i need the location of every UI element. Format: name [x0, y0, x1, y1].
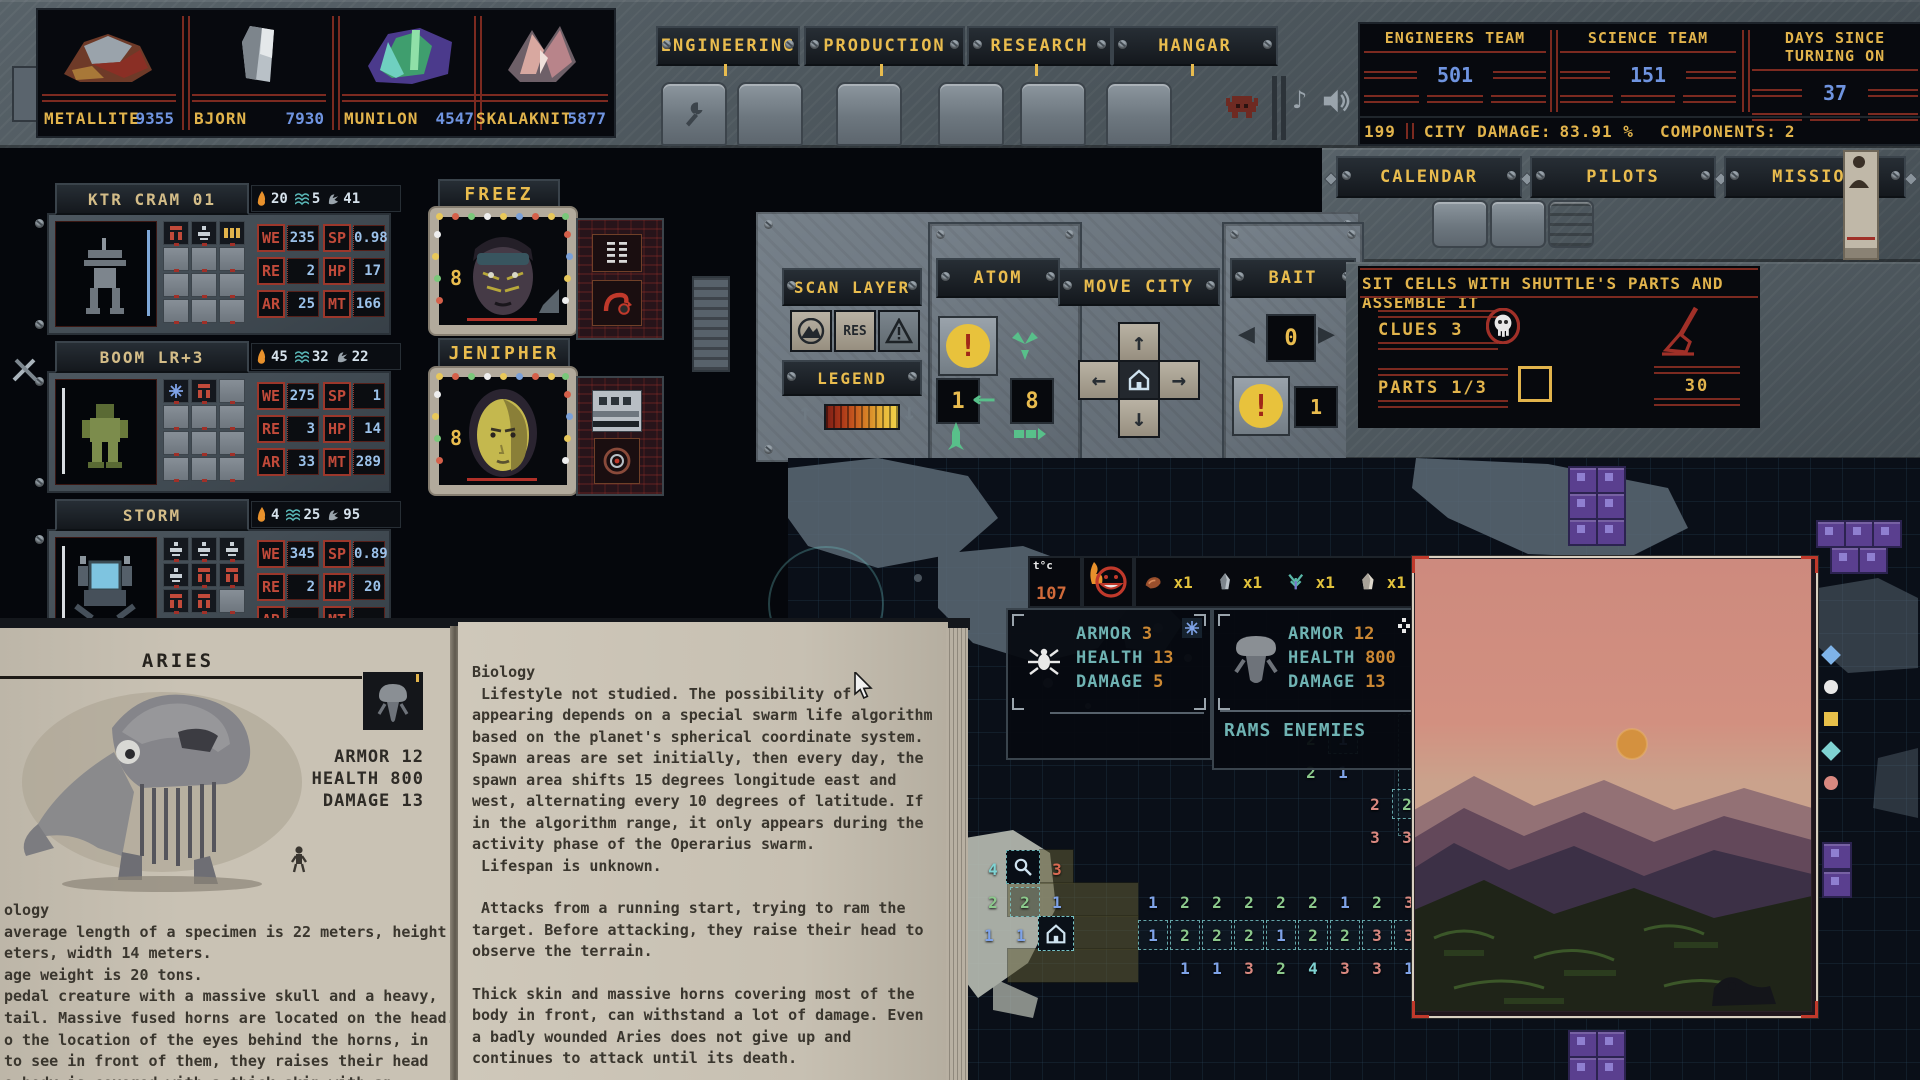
- tool-button-4[interactable]: [938, 82, 1004, 146]
- bracket: [1012, 614, 1024, 626]
- pilot-name-plate: FREEZ: [438, 179, 560, 209]
- warning-circle-icon: !: [1239, 384, 1283, 428]
- screw-icon: [1342, 171, 1351, 180]
- resource-metallite[interactable]: METALLITE 9355: [40, 18, 178, 130]
- skalaknit-crystal-icon: [484, 22, 596, 88]
- pilot-module-panel-jenipher[interactable]: [576, 376, 664, 496]
- screw-icon: [810, 40, 819, 49]
- nav-button-menu[interactable]: [1548, 200, 1594, 248]
- divider: [192, 94, 326, 102]
- screw-icon: [35, 320, 44, 329]
- bracket: [1218, 614, 1230, 626]
- module-slot-red[interactable]: [191, 589, 217, 613]
- tool-button-2[interactable]: [737, 82, 803, 146]
- screw-icon: [35, 535, 44, 544]
- module-slot-empty[interactable]: [163, 299, 189, 323]
- bait-increase-button[interactable]: ▶: [1318, 322, 1335, 347]
- module-slot-empty[interactable]: [163, 247, 189, 271]
- resource-skalaknit[interactable]: SKALAKNIT 5877: [472, 18, 610, 130]
- move-west-button[interactable]: ←: [1078, 360, 1120, 400]
- module-slot-yellow[interactable]: [219, 221, 245, 245]
- map-cell-number[interactable]: 3: [1334, 956, 1356, 980]
- bestiary-paragraph: Attacks from a running start, trying to …: [472, 898, 934, 963]
- book-left-page: ARIES: [0, 628, 452, 1080]
- divider: [1654, 366, 1740, 374]
- mech-name-plate: STORM: [55, 499, 249, 531]
- mech-slot-grid[interactable]: [163, 379, 251, 485]
- mech-name: BOOM LR+3: [100, 348, 205, 367]
- map-cell-number[interactable]: 2: [1170, 920, 1200, 950]
- tab-calendar[interactable]: CALENDAR: [1336, 156, 1522, 198]
- divider: [1378, 368, 1508, 376]
- armor-label: ARMOR: [1076, 624, 1132, 644]
- enemy-card-small: ARMOR 3 HEALTH 13 DAMAGE 5: [1006, 608, 1212, 760]
- screw-icon: [787, 281, 796, 290]
- move-east-button[interactable]: →: [1158, 360, 1200, 400]
- module-slot-white[interactable]: [219, 537, 245, 561]
- container-icon: [1596, 1030, 1626, 1058]
- module-slot-red[interactable]: [163, 221, 189, 245]
- screw-icon: [1065, 230, 1074, 239]
- game-screen: METALLITE 9355 BJORN 7930: [0, 0, 1920, 1080]
- portrait-underline: [467, 318, 537, 321]
- temperature-box: t°c 107: [1028, 556, 1082, 608]
- bait-title: BAIT: [1269, 268, 1318, 288]
- screw-icon: [950, 40, 959, 49]
- map-cell-number[interactable]: 2: [1330, 920, 1360, 950]
- bestiary-title: ARIES: [28, 650, 328, 672]
- nav-button-2[interactable]: [1490, 200, 1546, 248]
- container-icon: [1816, 520, 1846, 548]
- map-cell-number[interactable]: 1: [978, 923, 1000, 947]
- map-cell-number[interactable]: 2: [1298, 920, 1328, 950]
- enemy-trait: RAMS ENEMIES: [1224, 720, 1366, 741]
- module-slot-empty[interactable]: [219, 273, 245, 297]
- map-cell-number[interactable]: 1: [1010, 923, 1032, 947]
- stat-value-mt: 166: [353, 291, 385, 317]
- stat-label-sp: SP: [323, 382, 351, 410]
- legend-up-arrow-icon: ↑: [798, 398, 812, 426]
- triangle-right-icon: ▶: [1318, 322, 1335, 347]
- screw-icon: [785, 40, 794, 49]
- transfer-arrow-icon: ←: [972, 384, 995, 414]
- resource-bjorn[interactable]: BJORN 7930: [190, 18, 328, 130]
- volume-slider[interactable]: [1272, 76, 1277, 140]
- pilot-name: JENIPHER: [449, 343, 560, 364]
- divider: [1220, 710, 1414, 712]
- screw-icon: [1263, 40, 1272, 49]
- bait-deploy-button[interactable]: !: [1232, 376, 1290, 436]
- module-slot-red[interactable]: [219, 563, 245, 587]
- screw-icon: [1097, 40, 1106, 49]
- tool-button-5[interactable]: [1020, 82, 1086, 146]
- module-slot-white[interactable]: [163, 563, 189, 587]
- mouse-cursor: [853, 672, 877, 700]
- legend-plate: LEGEND: [782, 360, 922, 396]
- module-slot-empty[interactable]: [163, 273, 189, 297]
- map-cell-number[interactable]: 3: [1238, 956, 1260, 980]
- tab-label: RESEARCH: [991, 36, 1089, 56]
- module-slot-empty[interactable]: [219, 247, 245, 271]
- stat-value-sp: 1: [353, 383, 385, 409]
- stat-value-we: 275: [287, 383, 319, 409]
- tick: [416, 674, 419, 682]
- module-ladder-icon: [592, 234, 642, 272]
- tab-label: HANGAR: [1158, 36, 1231, 56]
- stat-value-we: 235: [287, 225, 319, 251]
- tab-hangar[interactable]: HANGAR: [1112, 26, 1278, 66]
- tab-engineering[interactable]: ENGINEERING: [656, 26, 800, 66]
- parts-checkbox[interactable]: [1518, 366, 1552, 402]
- city-home-button[interactable]: [1118, 360, 1160, 400]
- bestiary-paragraph: Lifestyle not studied. The possibility o…: [472, 684, 934, 856]
- clues-group: CLUES 3: [1378, 310, 1498, 350]
- stat-label-mt: MT: [323, 448, 351, 476]
- web-icon: [286, 508, 300, 522]
- mech-stats: WE275 SP1 RE3 HP14 AR33 MT289: [257, 379, 389, 485]
- damage-label: DAMAGE: [1076, 672, 1143, 692]
- map-cell-number[interactable]: 3: [1366, 956, 1388, 980]
- divider: [1742, 30, 1750, 112]
- atom-stored-count: 8: [1010, 378, 1054, 424]
- bait-value: 0: [1284, 326, 1297, 351]
- bracket: [1218, 698, 1230, 710]
- map-cell-number[interactable]: 3: [1362, 920, 1392, 950]
- scan-danger-button[interactable]: [878, 310, 920, 352]
- frame-corner: [1801, 556, 1818, 573]
- map-cell-number[interactable]: 1: [1266, 920, 1296, 950]
- drops-bar: x1 x1 x1 x1: [1134, 556, 1416, 608]
- mech-name-plate: KTR CRAM 01: [55, 183, 249, 215]
- atom-stored-value: 8: [1025, 389, 1038, 414]
- frame-corner: [1412, 556, 1429, 573]
- map-cell-number[interactable]: 1: [1206, 956, 1228, 980]
- figure-icon: [1845, 152, 1873, 192]
- screw-icon: [1206, 281, 1215, 290]
- module-slot-red[interactable]: [191, 379, 217, 403]
- parts-group: PARTS 1/3: [1378, 368, 1508, 408]
- pilot-name-plate: JENIPHER: [438, 338, 570, 368]
- tab-label: CALENDAR: [1380, 167, 1478, 187]
- enemy-card-aries: ARMOR 12 HEALTH 800 DAMAGE 13 RAMS ENEMI…: [1212, 608, 1422, 770]
- music-note-icon[interactable]: ♪: [1292, 86, 1307, 114]
- divider: [182, 16, 190, 130]
- map-cell-number[interactable]: 2: [1366, 890, 1388, 914]
- human-scale-figure: [290, 846, 308, 874]
- bestiary-text-line: tail. Massive fused horns are located on…: [4, 1008, 464, 1030]
- divider: [1621, 95, 1674, 103]
- map-cell-number[interactable]: 2: [1234, 920, 1264, 950]
- mech-threat-bar: 20 5 41: [251, 185, 401, 212]
- map-marker-icon: [1824, 680, 1838, 694]
- health-value: 13: [1153, 648, 1173, 668]
- team-value: 37: [1810, 81, 1860, 105]
- screw-icon: [1235, 272, 1244, 281]
- teams-panel: ENGINEERS TEAM 501 SCIENCE TEAM 151: [1358, 22, 1920, 146]
- container-icon: [1596, 518, 1626, 546]
- resource-name: MUNILON: [344, 109, 418, 128]
- tag-bottom: [1845, 248, 1877, 258]
- move-south-button[interactable]: ↓: [1118, 398, 1160, 438]
- heat-value: 4: [271, 507, 279, 523]
- map-cell-number[interactable]: 1: [1046, 890, 1068, 914]
- bait-count: 1: [1310, 395, 1322, 419]
- scan-resources-button[interactable]: RES: [834, 310, 876, 352]
- screw-icon: [1046, 272, 1055, 281]
- module-slot-empty[interactable]: [219, 405, 245, 429]
- bestiary-text-line: age weight is 20 tons.: [4, 965, 464, 987]
- bait-value-box: 0: [1266, 314, 1316, 362]
- atom-title: ATOM: [974, 268, 1023, 288]
- divider: [1752, 89, 1802, 97]
- components-label: COMPONENTS:: [1660, 122, 1777, 141]
- scan-terrain-button[interactable]: [790, 310, 832, 352]
- team-engineers: ENGINEERS TEAM 501: [1364, 24, 1546, 110]
- depot-icon: [1014, 426, 1048, 442]
- module-slot-empty[interactable]: [191, 457, 217, 481]
- map-cell-number[interactable]: 1: [1138, 920, 1168, 950]
- tab-pilots[interactable]: PILOTS: [1530, 156, 1716, 198]
- health-label: HEALTH: [1288, 648, 1355, 668]
- module-slot-empty[interactable]: [191, 273, 217, 297]
- divider: [1050, 712, 1204, 714]
- bait-decrease-button[interactable]: ◀: [1238, 322, 1255, 347]
- module-slot-empty[interactable]: [163, 457, 189, 481]
- resource-munilon[interactable]: MUNILON 4547: [340, 18, 478, 130]
- legend-title: LEGEND: [817, 369, 887, 388]
- location-viewport[interactable]: [1412, 556, 1818, 1018]
- scan-layer-plate: SCAN LAYER: [782, 268, 922, 306]
- top-bar: METALLITE 9355 BJORN 7930: [0, 0, 1920, 148]
- map-cell-number[interactable]: 3: [1046, 857, 1068, 881]
- hanging-tag[interactable]: [1843, 150, 1879, 260]
- status-left-value: 199: [1364, 122, 1396, 141]
- team-value: 501: [1425, 63, 1485, 87]
- container-icon: [1596, 1056, 1626, 1080]
- map-cell-number[interactable]: 4: [982, 857, 1004, 881]
- bestiary-book[interactable]: ARIES: [0, 618, 970, 1080]
- stat-value-re: 3: [287, 416, 319, 442]
- module-trait-icon: [1394, 616, 1414, 636]
- team-value: 151: [1618, 63, 1678, 87]
- stat-label-re: RE: [257, 573, 285, 601]
- web-value: 5: [312, 191, 320, 207]
- stat-label-ar: AR: [257, 290, 285, 318]
- map-cell-number[interactable]: 2: [1010, 887, 1040, 917]
- triangle-left-icon: ◀: [1238, 322, 1255, 347]
- bracket: [1194, 698, 1206, 710]
- bestiary-stat: DAMAGE 13: [312, 790, 424, 812]
- pilot-name: FREEZ: [464, 184, 533, 205]
- map-cell-number[interactable]: 2: [1238, 890, 1260, 914]
- map-cell-number[interactable]: 2: [1364, 792, 1386, 816]
- tab-research[interactable]: RESEARCH: [967, 26, 1112, 66]
- module-slot-white[interactable]: [191, 221, 217, 245]
- stat-value-ar: 33: [287, 449, 319, 475]
- screw-icon: [908, 372, 917, 381]
- container-icon: [1596, 466, 1626, 494]
- screw-icon: [1891, 171, 1900, 180]
- module-slot-empty[interactable]: [191, 431, 217, 455]
- mech-name: KTR CRAM 01: [88, 190, 216, 209]
- divider: [1364, 95, 1419, 103]
- module-slot-empty[interactable]: [219, 589, 245, 613]
- invader-icon: [1224, 92, 1260, 124]
- stat-value-sp: 0.98: [353, 225, 385, 251]
- parts-label: PARTS: [1378, 378, 1439, 398]
- heat-icon: [256, 349, 268, 365]
- screw-icon: [787, 372, 796, 381]
- module-slot-red[interactable]: [163, 589, 189, 613]
- stat-label-sp: SP: [323, 540, 351, 568]
- ribbed-strip: [692, 276, 730, 372]
- stat-value-re: 2: [287, 258, 319, 284]
- shard-drop-icon: [1217, 571, 1233, 593]
- bestiary-text-line: o the location of the eyes behind the ho…: [4, 1030, 464, 1052]
- pilot-card-jenipher[interactable]: 8: [428, 366, 578, 496]
- map-cell-number[interactable]: 2: [1270, 890, 1292, 914]
- components-value: 2: [1785, 122, 1796, 141]
- portrait-gauge: [147, 230, 150, 316]
- stat-label-re: RE: [257, 257, 285, 285]
- stat-label-we: WE: [257, 540, 285, 568]
- team-science: SCIENCE TEAM 151: [1560, 24, 1736, 110]
- screw-icon: [35, 219, 44, 228]
- resource-name: METALLITE: [44, 109, 140, 128]
- stat-label-we: WE: [257, 382, 285, 410]
- tool-button-wrench[interactable]: [661, 82, 727, 146]
- tab-production[interactable]: PRODUCTION: [804, 26, 965, 66]
- mech-slot-grid[interactable]: [163, 221, 251, 327]
- resource-value: 7930: [285, 109, 324, 128]
- map-cell-number[interactable]: 1: [1142, 890, 1164, 914]
- module-slot-white[interactable]: [163, 537, 189, 561]
- module-slot-empty[interactable]: [219, 457, 245, 481]
- mech-panel-ktr-cram[interactable]: KTR CRAM 01 20 5 41: [37, 183, 391, 335]
- stat-label-sp: SP: [323, 224, 351, 252]
- divider: [474, 94, 608, 102]
- nav-button-1[interactable]: [1432, 200, 1488, 248]
- screw-icon: [1118, 40, 1127, 49]
- map-cell-number[interactable]: 2: [982, 890, 1004, 914]
- atom-launch-button[interactable]: !: [938, 316, 998, 376]
- module-slot-empty[interactable]: [163, 431, 189, 455]
- map-cell-number[interactable]: 3: [1364, 825, 1386, 849]
- container-icon: [1568, 492, 1598, 520]
- volume-slider-2[interactable]: [1281, 76, 1286, 140]
- terrain-cell: [1072, 916, 1138, 949]
- screw-icon: [1701, 171, 1710, 180]
- map-cell-number[interactable]: 2: [1202, 920, 1232, 950]
- bestiary-paragraph: [472, 877, 934, 898]
- bjorn-crystal-icon: [202, 22, 314, 88]
- heat-icon: [256, 191, 268, 207]
- move-north-button[interactable]: ↑: [1118, 322, 1160, 362]
- heat-icon: [256, 507, 268, 523]
- plant-drop-icon: [1286, 571, 1305, 593]
- city-home-cell[interactable]: [1038, 916, 1074, 951]
- damage-label: DAMAGE: [1288, 672, 1355, 692]
- map-cell-number[interactable]: 1: [1174, 956, 1196, 980]
- mech-panel-boom[interactable]: BOOM LR+3 45 32 22: [37, 341, 391, 493]
- divider: [1654, 398, 1740, 406]
- module-slot-white[interactable]: [191, 537, 217, 561]
- warning-triangle-icon: [885, 318, 913, 344]
- parts-value: 1/3: [1451, 378, 1488, 398]
- stat-value-hp: 20: [353, 574, 385, 600]
- divider: [1560, 95, 1613, 103]
- freeze-trait-icon: [1182, 618, 1202, 638]
- map-cell-number[interactable]: 4: [1302, 956, 1324, 980]
- bait-count-box: 1: [1294, 386, 1338, 428]
- damage-value: 13: [1365, 672, 1385, 692]
- divider: [1683, 95, 1736, 103]
- module-slot-empty[interactable]: [219, 431, 245, 455]
- mech-name: STORM: [123, 506, 181, 525]
- clues-label: CLUES: [1378, 320, 1439, 340]
- container-icon: [1822, 842, 1852, 870]
- speaker-icon[interactable]: [1322, 88, 1350, 114]
- tab-label: PRODUCTION: [823, 36, 945, 56]
- divider: [1550, 30, 1558, 112]
- drop-count: x1: [1316, 573, 1335, 592]
- map-cell-number[interactable]: 2: [1174, 890, 1196, 914]
- heat-face-box: [1082, 556, 1134, 608]
- stat-label-hp: HP: [323, 257, 351, 285]
- divider: [1868, 89, 1918, 97]
- mech-sprite: [56, 380, 154, 482]
- module-slot-empty[interactable]: [163, 405, 189, 429]
- divider: [1360, 296, 1758, 300]
- pilot-module-panel-freez[interactable]: [576, 218, 664, 340]
- module-slot-empty[interactable]: [219, 379, 245, 403]
- claw-value: 41: [343, 191, 360, 207]
- bestiary-paragraph: [472, 963, 934, 984]
- module-slot-empty[interactable]: [219, 299, 245, 323]
- stat-label-hp: HP: [323, 573, 351, 601]
- screw-icon: [764, 220, 773, 229]
- map-cell-number[interactable]: 1: [1334, 890, 1356, 914]
- tab-tick: [880, 64, 883, 76]
- map-cell-number[interactable]: 2: [1302, 890, 1324, 914]
- radiation-icon: [1008, 330, 1042, 362]
- tool-button-3[interactable]: [836, 82, 902, 146]
- container-icon: [1830, 546, 1860, 574]
- web-value: 32: [312, 349, 329, 365]
- map-cell-number[interactable]: 2: [1270, 956, 1292, 980]
- rocket-icon: [946, 422, 966, 452]
- clue-skull-icon[interactable]: [1486, 308, 1520, 344]
- module-slot-empty[interactable]: [191, 247, 217, 271]
- container-icon: [1568, 466, 1598, 494]
- screw-icon: [1730, 171, 1739, 180]
- meat-drop-icon: [1144, 572, 1163, 592]
- divider: [1493, 71, 1546, 79]
- module-slot-empty[interactable]: [191, 405, 217, 429]
- armor-value: 12: [1354, 624, 1374, 644]
- module-slot-blue[interactable]: [163, 379, 189, 403]
- temp-unit: t°c: [1033, 559, 1053, 572]
- armor-value: 3: [1142, 624, 1152, 644]
- map-cell-number[interactable]: 2: [1206, 890, 1228, 914]
- module-slot-empty[interactable]: [191, 299, 217, 323]
- pilot-card-freez[interactable]: 8: [428, 206, 578, 336]
- scout-cell[interactable]: [1006, 850, 1040, 884]
- tool-button-6[interactable]: [1106, 82, 1172, 146]
- container-icon: [1872, 520, 1902, 548]
- module-slot-red[interactable]: [191, 563, 217, 587]
- stat-label-we: WE: [257, 224, 285, 252]
